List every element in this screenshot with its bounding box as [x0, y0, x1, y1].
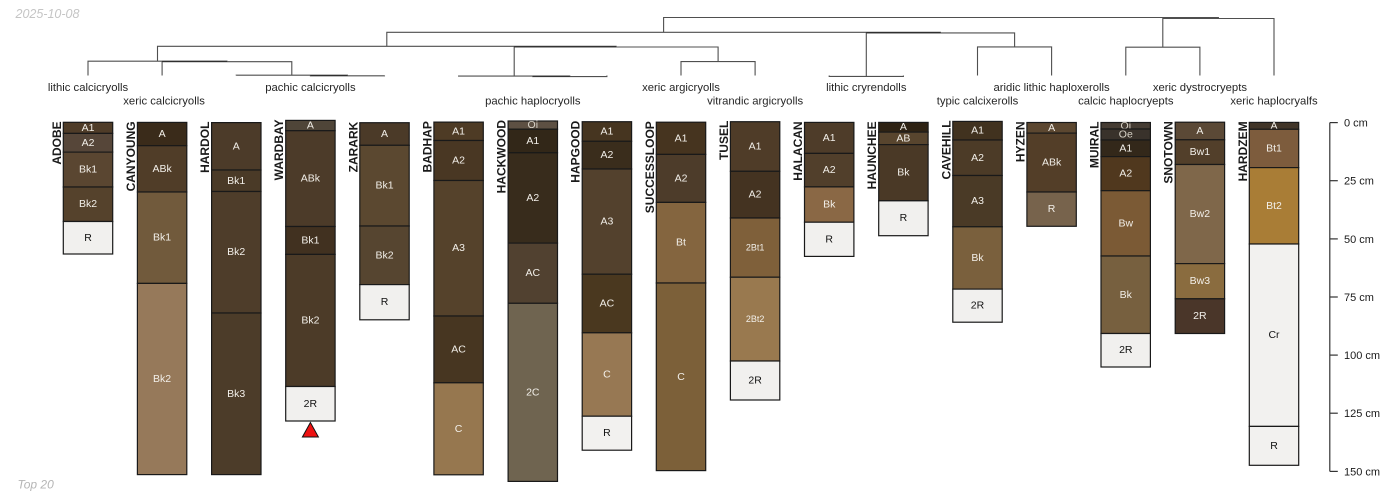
svg-text:A1: A1	[971, 125, 984, 137]
svg-text:2R: 2R	[748, 375, 762, 387]
svg-text:2R: 2R	[1193, 310, 1207, 322]
svg-text:CAVEHILL: CAVEHILL	[939, 120, 953, 179]
svg-text:A3: A3	[452, 242, 465, 254]
svg-text:vitrandic argicryolls: vitrandic argicryolls	[707, 96, 803, 108]
svg-text:ABk: ABk	[301, 173, 321, 185]
svg-text:lithic cryrendolls: lithic cryrendolls	[826, 82, 907, 94]
svg-text:A1: A1	[1119, 142, 1132, 154]
svg-text:xeric calcicryolls: xeric calcicryolls	[123, 96, 205, 108]
svg-text:2025-10-08: 2025-10-08	[15, 7, 80, 21]
svg-text:25 cm: 25 cm	[1344, 176, 1374, 188]
svg-text:HALACAN: HALACAN	[791, 121, 805, 180]
svg-text:Bk2: Bk2	[301, 314, 319, 326]
svg-text:Bk2: Bk2	[227, 246, 245, 258]
svg-text:HAUNCHEE: HAUNCHEE	[865, 121, 879, 189]
svg-text:xeric dystrocryepts: xeric dystrocryepts	[1153, 82, 1248, 94]
svg-text:A: A	[307, 120, 314, 132]
svg-text:A2: A2	[526, 192, 539, 204]
svg-text:R: R	[603, 427, 611, 439]
svg-text:Bk: Bk	[971, 252, 984, 264]
svg-text:A2: A2	[600, 149, 613, 161]
svg-text:Bw1: Bw1	[1190, 146, 1211, 158]
svg-text:Bw3: Bw3	[1190, 275, 1211, 287]
svg-text:SNOTOWN: SNOTOWN	[1162, 121, 1176, 183]
svg-text:WARDBAY: WARDBAY	[272, 119, 286, 180]
svg-text:AB: AB	[896, 132, 910, 144]
svg-text:A1: A1	[823, 132, 836, 144]
svg-text:Top 20: Top 20	[18, 478, 55, 492]
svg-text:Bk3: Bk3	[227, 388, 245, 400]
svg-text:A2: A2	[1119, 168, 1132, 180]
svg-text:A2: A2	[971, 152, 984, 164]
svg-text:A3: A3	[600, 216, 613, 228]
svg-text:Oe: Oe	[1119, 129, 1133, 141]
svg-text:Bk2: Bk2	[79, 198, 97, 210]
svg-text:Bt2: Bt2	[1266, 200, 1282, 212]
svg-text:A2: A2	[82, 137, 95, 149]
svg-text:ZARARK: ZARARK	[346, 121, 360, 172]
svg-text:aridic lithic haploxerolls: aridic lithic haploxerolls	[994, 82, 1111, 94]
svg-text:A1: A1	[452, 125, 465, 137]
svg-text:HYZEN: HYZEN	[1013, 122, 1027, 163]
svg-text:ADOBE: ADOBE	[50, 121, 64, 164]
svg-text:Bk: Bk	[897, 167, 910, 179]
svg-text:Bk1: Bk1	[301, 234, 319, 246]
svg-text:75 cm: 75 cm	[1344, 292, 1374, 304]
svg-text:2R: 2R	[971, 300, 985, 312]
svg-text:ABk: ABk	[1042, 157, 1062, 169]
svg-text:pachic haplocryolls: pachic haplocryolls	[485, 96, 581, 108]
svg-text:A: A	[381, 128, 388, 140]
svg-text:CANYOUNG: CANYOUNG	[124, 121, 138, 191]
svg-text:Bw2: Bw2	[1190, 208, 1211, 220]
svg-text:C: C	[677, 371, 685, 383]
svg-text:125 cm: 125 cm	[1344, 408, 1380, 420]
svg-text:150 cm: 150 cm	[1344, 466, 1380, 478]
svg-text:A2: A2	[749, 189, 762, 201]
svg-text:Bk: Bk	[823, 199, 836, 211]
svg-text:Bk1: Bk1	[227, 175, 245, 187]
svg-text:AC: AC	[600, 298, 615, 310]
svg-text:A: A	[1048, 122, 1055, 134]
svg-text:R: R	[900, 212, 908, 224]
svg-text:50 cm: 50 cm	[1344, 234, 1374, 246]
svg-text:lithic calcicryolls: lithic calcicryolls	[48, 82, 129, 94]
svg-text:A: A	[159, 128, 166, 140]
svg-text:A: A	[233, 140, 240, 152]
svg-text:Bk1: Bk1	[153, 232, 171, 244]
svg-text:A1: A1	[600, 126, 613, 138]
svg-text:Bk2: Bk2	[153, 373, 171, 385]
svg-text:AC: AC	[451, 343, 466, 355]
svg-text:A: A	[1196, 125, 1203, 137]
svg-text:2C: 2C	[526, 386, 540, 398]
svg-text:typic calcixerolls: typic calcixerolls	[937, 96, 1019, 108]
svg-text:TUSEL: TUSEL	[717, 121, 731, 160]
svg-text:A1: A1	[526, 135, 539, 147]
svg-text:HACKWOOD: HACKWOOD	[495, 120, 509, 194]
svg-text:HAPGOOD: HAPGOOD	[569, 120, 583, 182]
svg-text:R: R	[1270, 440, 1278, 452]
svg-text:calcic haplocryepts: calcic haplocryepts	[1078, 96, 1174, 108]
svg-text:xeric haplocryalfs: xeric haplocryalfs	[1230, 96, 1318, 108]
svg-text:A1: A1	[82, 122, 95, 134]
svg-text:R: R	[84, 232, 92, 244]
svg-text:A2: A2	[675, 172, 688, 184]
svg-text:Bk2: Bk2	[375, 249, 393, 261]
svg-text:A3: A3	[971, 195, 984, 207]
svg-text:pachic calcicryolls: pachic calcicryolls	[265, 82, 356, 94]
svg-text:SUCCESSLOOP: SUCCESSLOOP	[643, 121, 657, 213]
svg-text:Bw: Bw	[1119, 217, 1134, 229]
svg-text:R: R	[825, 233, 833, 245]
svg-text:Bt1: Bt1	[1266, 142, 1282, 154]
svg-text:A2: A2	[823, 164, 836, 176]
svg-text:AC: AC	[526, 267, 541, 279]
svg-text:MUIRAL: MUIRAL	[1088, 122, 1102, 169]
svg-text:Cr: Cr	[1268, 329, 1280, 341]
svg-text:2Bt1: 2Bt1	[746, 243, 765, 253]
svg-text:C: C	[455, 423, 463, 435]
svg-text:R: R	[381, 296, 389, 308]
svg-text:xeric argicryolls: xeric argicryolls	[642, 82, 720, 94]
svg-text:HARDOL: HARDOL	[198, 122, 212, 173]
svg-text:2R: 2R	[1119, 344, 1133, 356]
svg-text:HARDZEM: HARDZEM	[1236, 121, 1250, 181]
svg-text:2Bt2: 2Bt2	[746, 314, 765, 324]
svg-text:A1: A1	[675, 132, 688, 144]
svg-text:C: C	[603, 369, 611, 381]
svg-text:100 cm: 100 cm	[1344, 350, 1380, 362]
svg-text:2R: 2R	[304, 398, 318, 410]
svg-text:Bk1: Bk1	[375, 180, 393, 192]
svg-text:Bk: Bk	[1120, 289, 1133, 301]
svg-text:R: R	[1048, 203, 1056, 215]
svg-text:Bt: Bt	[676, 237, 686, 249]
svg-text:Bk1: Bk1	[79, 164, 97, 176]
svg-text:BADHAP: BADHAP	[420, 121, 434, 172]
svg-text:0 cm: 0 cm	[1344, 118, 1368, 130]
svg-text:ABk: ABk	[152, 163, 172, 175]
svg-text:A2: A2	[452, 155, 465, 167]
svg-text:A1: A1	[749, 141, 762, 153]
